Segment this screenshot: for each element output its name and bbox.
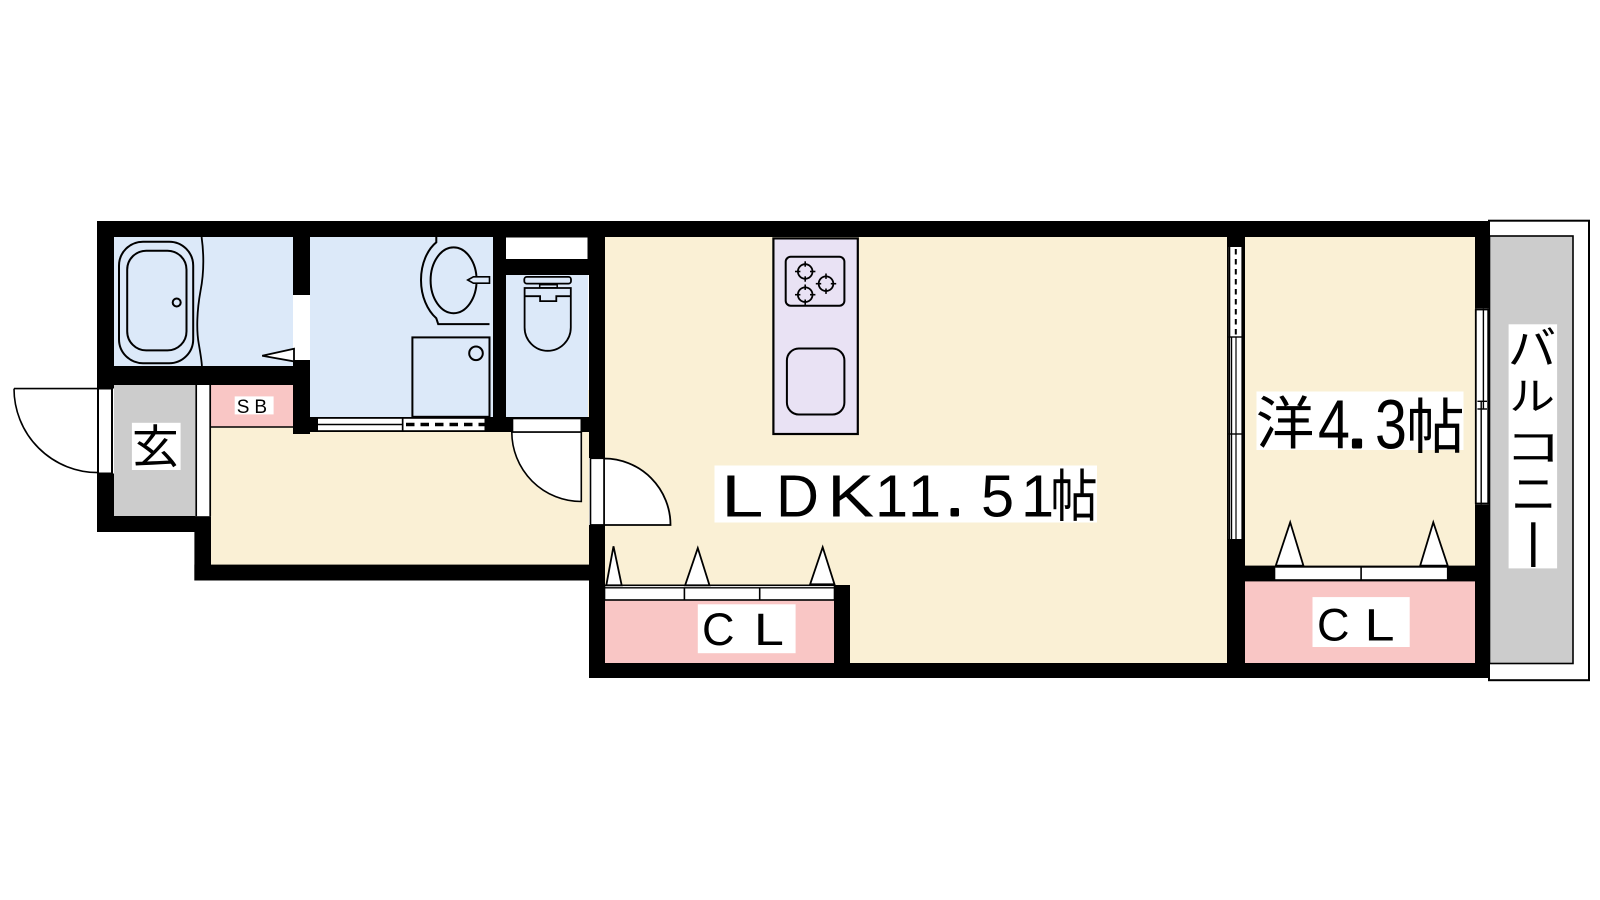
svg-text:C: C (702, 604, 735, 655)
svg-text:L: L (754, 604, 784, 655)
svg-text:3: 3 (1375, 385, 1407, 464)
svg-text:L: L (1365, 600, 1395, 651)
svg-text:SB: SB (237, 397, 272, 418)
svg-text:D: D (776, 463, 819, 530)
svg-text:K: K (827, 463, 874, 530)
svg-text:L: L (721, 463, 763, 529)
svg-text:4: 4 (1318, 385, 1350, 464)
svg-text:11: 11 (875, 463, 941, 530)
svg-text:C: C (1317, 600, 1350, 651)
